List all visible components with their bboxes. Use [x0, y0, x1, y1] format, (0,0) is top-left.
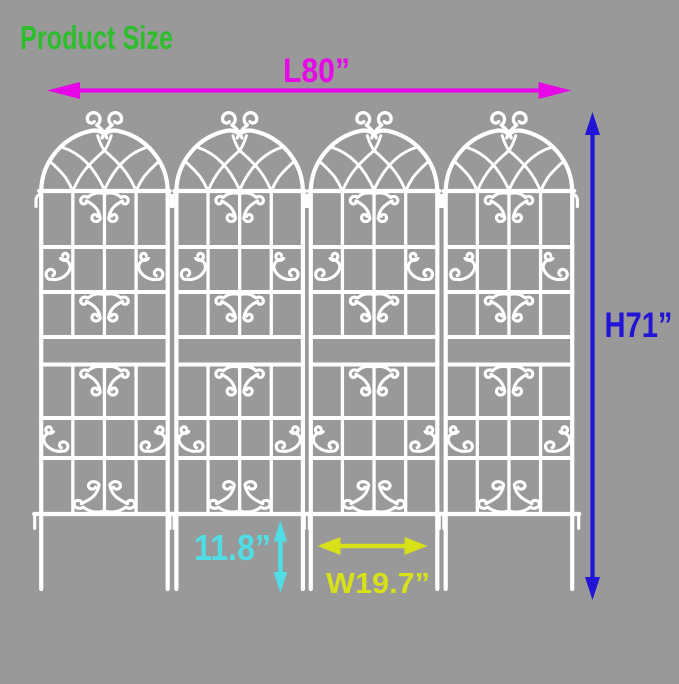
svg-text:Product Size: Product Size — [20, 19, 173, 56]
svg-text:H71”: H71” — [605, 306, 673, 345]
svg-text:W19.7”: W19.7” — [326, 568, 430, 600]
svg-text:11.8”: 11.8” — [194, 527, 271, 568]
svg-text:L80”: L80” — [283, 52, 350, 90]
